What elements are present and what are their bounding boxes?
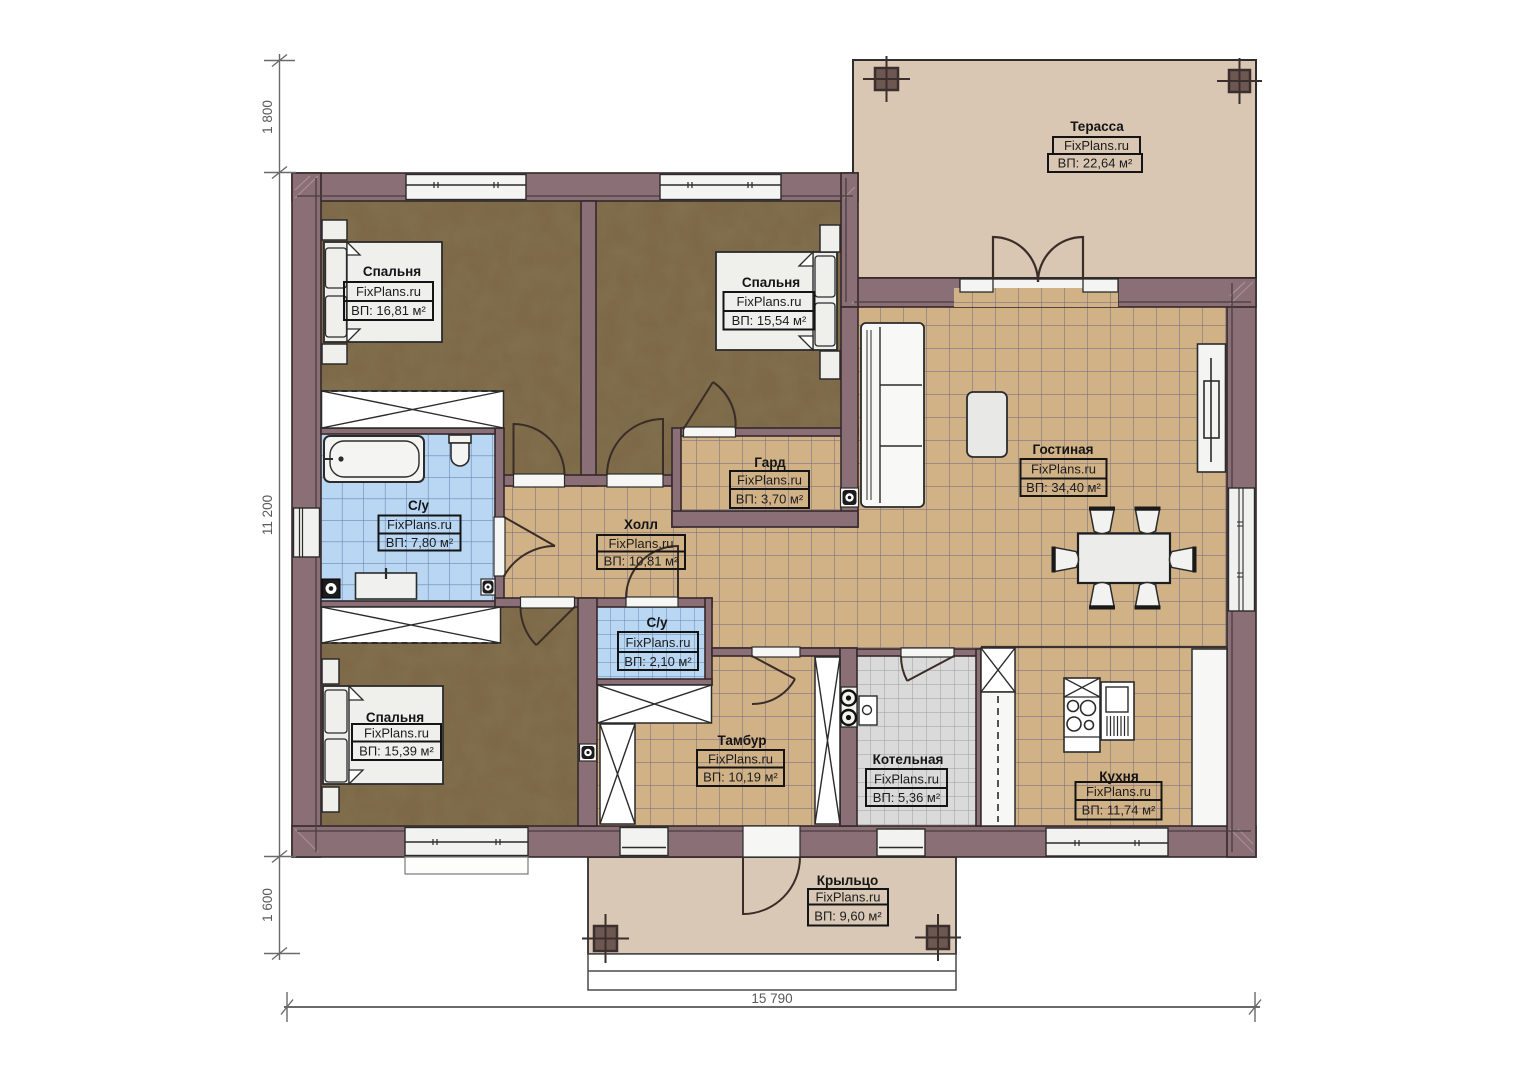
svg-text:FixPlans.ru: FixPlans.ru: [737, 473, 802, 488]
svg-text:1 600: 1 600: [260, 888, 275, 922]
svg-text:11 200: 11 200: [260, 495, 275, 535]
svg-text:Гард: Гард: [754, 455, 786, 470]
svg-text:FixPlans.ru: FixPlans.ru: [736, 294, 801, 309]
svg-text:Гостиная: Гостиная: [1032, 442, 1093, 457]
svg-text:FixPlans.ru: FixPlans.ru: [1064, 138, 1129, 153]
svg-text:ВП: 7,80 м²: ВП: 7,80 м²: [386, 535, 454, 550]
svg-text:Спальня: Спальня: [742, 275, 800, 290]
svg-text:FixPlans.ru: FixPlans.ru: [708, 752, 773, 767]
svg-text:FixPlans.ru: FixPlans.ru: [625, 635, 690, 650]
svg-text:Крыльцо: Крыльцо: [817, 873, 878, 888]
svg-text:Холл: Холл: [624, 517, 658, 532]
svg-text:ВП: 34,40 м²: ВП: 34,40 м²: [1026, 480, 1101, 495]
svg-text:ВП: 16,81 м²: ВП: 16,81 м²: [351, 303, 426, 318]
svg-text:ВП: 15,39 м²: ВП: 15,39 м²: [359, 744, 434, 759]
svg-text:FixPlans.ru: FixPlans.ru: [356, 284, 421, 299]
svg-text:FixPlans.ru: FixPlans.ru: [874, 772, 939, 787]
svg-text:FixPlans.ru: FixPlans.ru: [1031, 462, 1096, 477]
svg-text:Терасса: Терасса: [1070, 119, 1124, 134]
svg-text:ВП: 9,60 м²: ВП: 9,60 м²: [814, 909, 882, 924]
svg-text:ВП: 3,70 м²: ВП: 3,70 м²: [736, 492, 804, 507]
svg-text:FixPlans.ru: FixPlans.ru: [364, 726, 429, 741]
svg-text:ВП: 22,64 м²: ВП: 22,64 м²: [1058, 156, 1133, 171]
svg-text:ВП: 10,81 м²: ВП: 10,81 м²: [604, 554, 679, 569]
svg-text:Спальня: Спальня: [366, 710, 424, 725]
svg-text:ВП: 2,10 м²: ВП: 2,10 м²: [624, 654, 692, 669]
svg-text:С/у: С/у: [408, 498, 430, 513]
svg-text:15 790: 15 790: [751, 991, 792, 1006]
svg-text:ВП: 11,74 м²: ВП: 11,74 м²: [1082, 803, 1156, 818]
svg-text:Спальня: Спальня: [363, 264, 421, 279]
svg-text:Котельная: Котельная: [873, 752, 944, 767]
svg-text:FixPlans.ru: FixPlans.ru: [815, 890, 880, 905]
svg-text:ВП: 15,54 м²: ВП: 15,54 м²: [732, 313, 807, 328]
svg-text:FixPlans.ru: FixPlans.ru: [608, 536, 673, 551]
svg-text:ВП: 10,19 м²: ВП: 10,19 м²: [703, 770, 778, 785]
svg-text:Тамбур: Тамбур: [718, 733, 767, 748]
svg-text:FixPlans.ru: FixPlans.ru: [1086, 784, 1151, 799]
svg-text:FixPlans.ru: FixPlans.ru: [387, 517, 452, 532]
svg-text:С/у: С/у: [646, 615, 668, 630]
svg-text:ВП: 5,36 м²: ВП: 5,36 м²: [873, 790, 941, 805]
svg-text:1 800: 1 800: [260, 100, 275, 134]
